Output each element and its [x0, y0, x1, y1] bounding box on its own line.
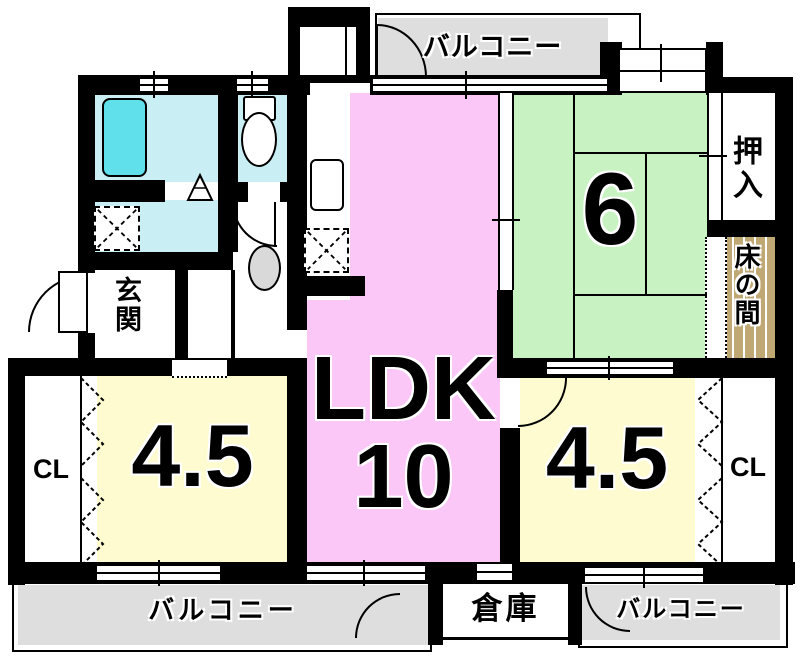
wall: [280, 182, 287, 202]
wall: [8, 358, 288, 376]
tokonoma-edge: [705, 237, 727, 358]
west-room-opening: [172, 360, 227, 378]
closet-left-label: CL: [22, 456, 80, 483]
washbasin-icon: [248, 245, 281, 291]
refrigerator-space-icon: [304, 228, 349, 273]
entrance-door-leaf: [58, 271, 88, 333]
balcony-top-label: バルコニー: [380, 34, 605, 61]
window: [618, 48, 707, 93]
storage-door: [477, 562, 512, 582]
window: [307, 564, 425, 582]
east-room-door-opening: [500, 378, 520, 428]
window-tick: [660, 44, 662, 82]
bathtub-icon: [102, 98, 147, 177]
sliding-door: [498, 93, 514, 290]
balcony-door-window: [373, 77, 607, 93]
floor-plan: バルコニー 押入 床の間 玄関 6 LDK10 4.5 4.5 CL CL 倉庫…: [0, 0, 800, 662]
balcony-door-leaf: [376, 24, 378, 77]
ldk-label-line1: LDK: [311, 339, 496, 439]
window-tick: [363, 560, 365, 586]
storage-label: 倉庫: [443, 593, 568, 624]
wall: [300, 276, 365, 296]
wall: [700, 358, 793, 378]
toilet-door-opening: [248, 184, 280, 202]
toilet-door-leaf: [274, 202, 276, 247]
wall: [95, 180, 165, 202]
tatami-line: [573, 294, 707, 296]
wall: [175, 268, 188, 360]
wall: [707, 220, 775, 237]
east-room-size-label: 4.5: [519, 414, 695, 502]
wall: [231, 270, 235, 358]
window: [547, 360, 673, 376]
window-tick: [465, 71, 467, 99]
tatami-room-size-label: 6: [513, 158, 707, 260]
hall-ldk-opening: [287, 330, 307, 358]
entrance-label: 玄関: [112, 276, 139, 334]
wall: [287, 358, 307, 568]
oshiire-label: 押入: [729, 135, 759, 203]
window-tick: [251, 71, 253, 98]
meter-box: [298, 25, 358, 77]
balcony-bottom-left-label: バルコニー: [18, 597, 428, 623]
window-tick: [153, 71, 155, 98]
wall: [218, 75, 238, 252]
wall: [80, 252, 233, 270]
folding-door-icon: [158, 172, 220, 202]
ldk-label: LDK10: [305, 345, 502, 521]
west-room-size-label: 4.5: [97, 412, 288, 500]
toilet-door-arc: [232, 202, 277, 247]
window-tick: [643, 562, 645, 588]
meter-box-divider: [345, 27, 347, 75]
ldk-label-line2: 10: [353, 427, 453, 527]
wall: [775, 77, 793, 585]
wall: [78, 75, 310, 95]
window-tick: [158, 560, 160, 586]
kitchen-sink-icon: [310, 159, 344, 211]
closet-right-label: CL: [718, 454, 778, 481]
wall: [568, 562, 582, 645]
sliding-door-tick: [699, 155, 727, 157]
tokonoma-label: 床の間: [733, 243, 759, 327]
wall: [428, 562, 443, 645]
balcony-bottom-right-label: バルコニー: [582, 598, 780, 622]
window-tick: [608, 356, 610, 380]
washing-machine-space-icon: [94, 206, 140, 251]
toilet-bowl-icon: [241, 112, 277, 167]
wall: [238, 182, 248, 202]
